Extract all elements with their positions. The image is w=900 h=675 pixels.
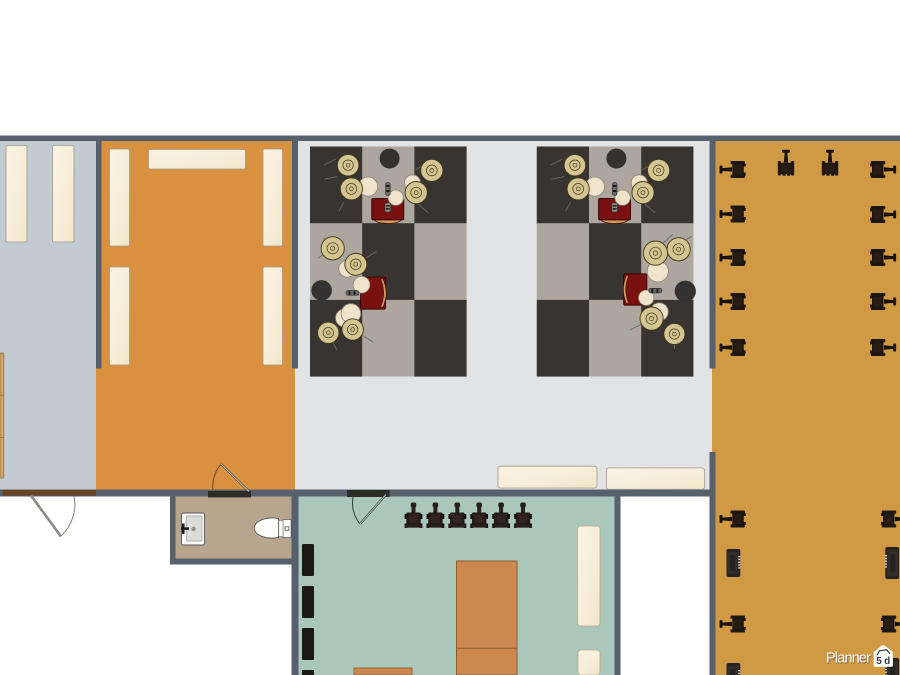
svg-text:5d: 5d [876,656,890,667]
svg-text:Planner: Planner [826,651,871,667]
